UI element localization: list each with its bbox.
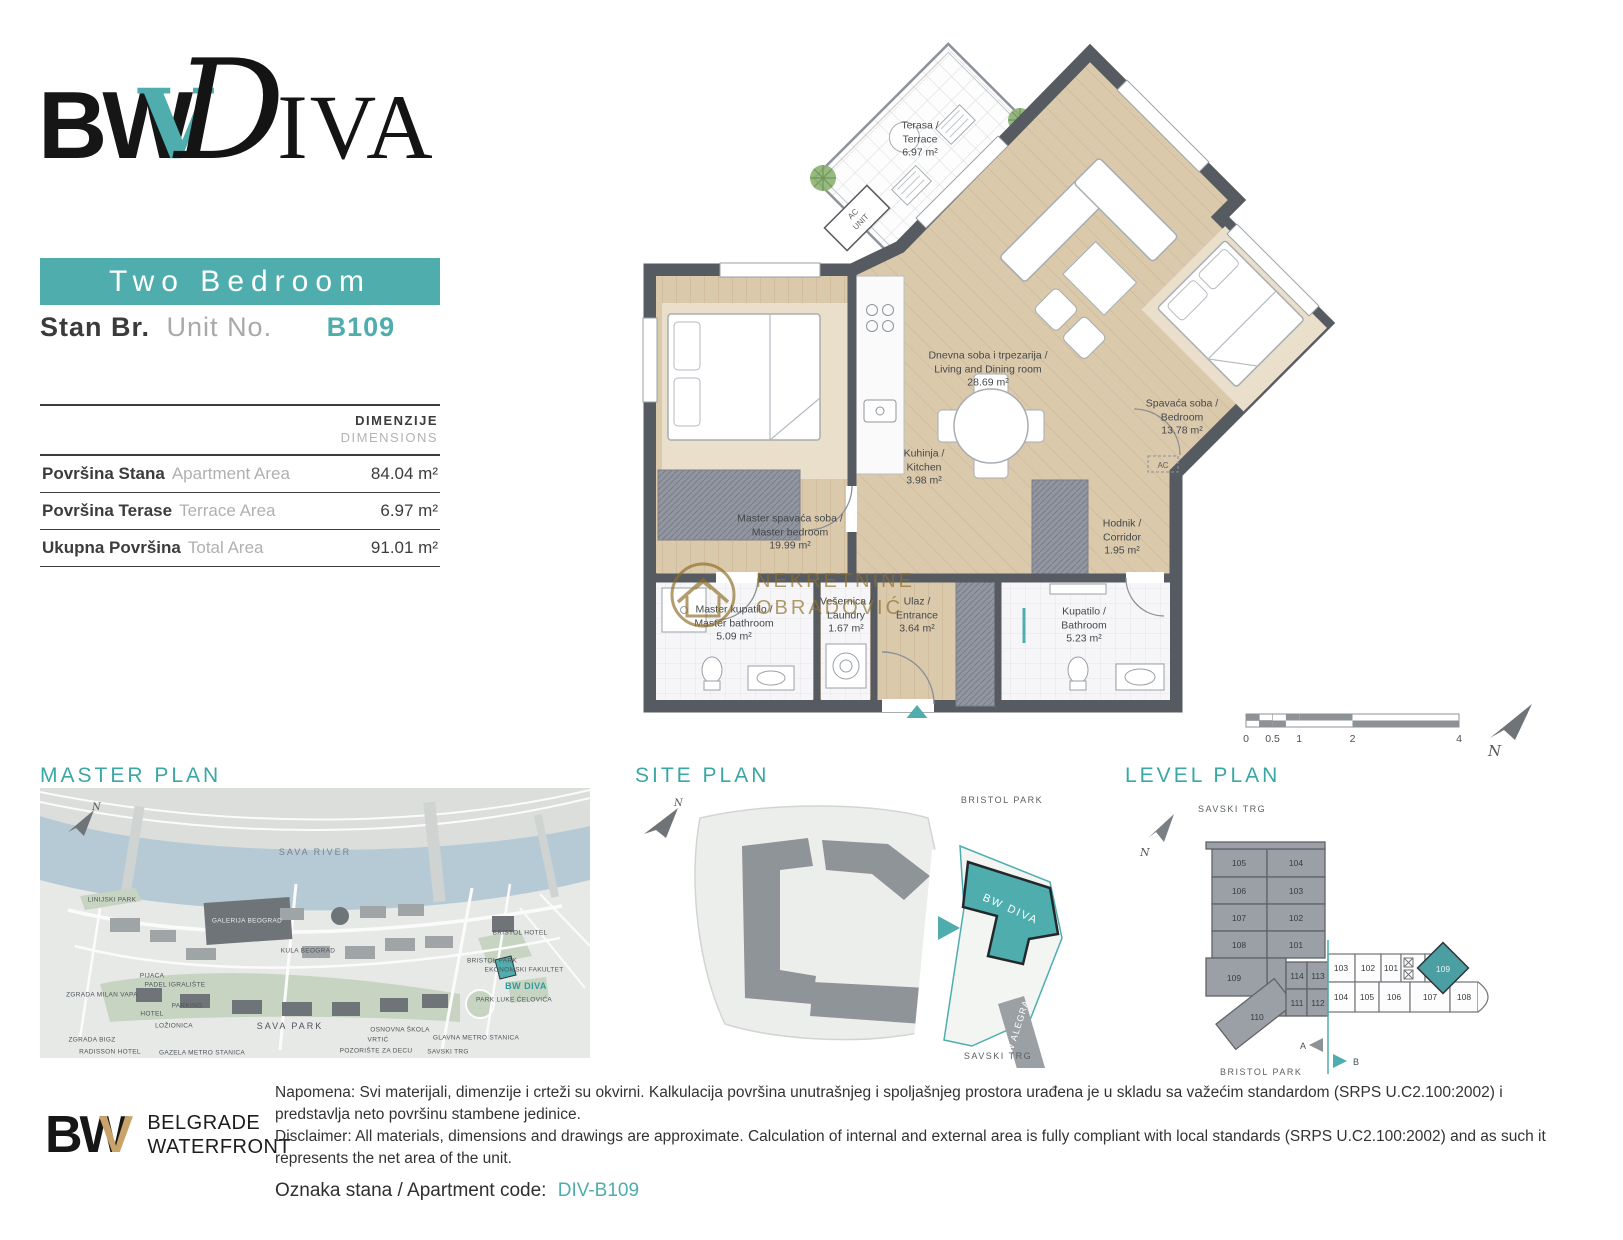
- scale-bar: 0 0.5 1 2 4: [1243, 714, 1462, 745]
- shaft-wall: [956, 578, 996, 706]
- svg-text:108: 108: [1232, 940, 1246, 950]
- svg-text:102: 102: [1289, 913, 1303, 923]
- svg-text:101: 101: [1289, 940, 1303, 950]
- row-label-sr: Površina Stana: [42, 464, 165, 484]
- room-label-corridor: Hodnik /Corridor1.95 m²: [1103, 518, 1142, 559]
- room-label-terrace: Terasa /Terrace6.97 m²: [901, 120, 938, 161]
- map-label-bw-diva: BW DIVA: [505, 981, 547, 991]
- apartment-code-line: Oznaka stana / Apartment code: DIV-B109: [275, 1180, 639, 1202]
- kitchen-sink-icon: [864, 400, 896, 422]
- watermark-line1: NEKRETNINE: [756, 568, 915, 595]
- map-label: GAZELA METRO STANICA: [159, 1050, 245, 1057]
- svg-text:111: 111: [1291, 998, 1304, 1008]
- site-plan-map: BW DIVA BW ALEGRA N BRISTOL PARK SAVSKI …: [630, 788, 1080, 1068]
- map-label: VRTIĆ: [368, 1037, 389, 1044]
- plant-icon: [810, 165, 836, 191]
- unit-type-banner: Two Bedroom: [40, 258, 440, 305]
- svg-text:N: N: [1139, 846, 1150, 859]
- unit-type-label: Two Bedroom: [109, 265, 371, 299]
- apartment-code-label: Oznaka stana / Apartment code:: [275, 1180, 546, 1201]
- footer-logo-text: BELGRADE WATERFRONT: [147, 1111, 291, 1159]
- map-label: GLAVNA METRO STANICA: [433, 1035, 519, 1042]
- svg-text:109: 109: [1227, 973, 1241, 983]
- svg-text:109: 109: [1436, 964, 1450, 974]
- table-row: Površina Stana Apartment Area 84.04 m²: [40, 454, 440, 492]
- map-label: PARK LUKE ĆELOVIĆA: [476, 997, 552, 1004]
- svg-text:104: 104: [1289, 858, 1303, 868]
- unit-label-en: Unit No.: [167, 312, 273, 342]
- site-label-bristol-park: BRISTOL PARK: [961, 795, 1043, 805]
- map-label: BRISTOL HOTEL: [493, 930, 548, 937]
- svg-text:N: N: [91, 802, 102, 813]
- dimensions-table: DIMENZIJE DIMENSIONS Površina Stana Apar…: [40, 404, 440, 567]
- note-serbian: Napomena: Svi materijali, dimenzije i cr…: [275, 1082, 1570, 1126]
- footer-logo-gold-v: V: [99, 1105, 134, 1165]
- scale-bar-area: 0 0.5 1 2 4 N: [1238, 694, 1568, 766]
- room-label-living: Dnevna soba i trpezarija /Living and Din…: [928, 350, 1047, 391]
- svg-text:101: 101: [1384, 963, 1398, 973]
- watermark-line2: OBRADOVIĆ: [756, 595, 915, 622]
- room-label-bedroom: Spavaća soba /Bedroom13.78 m²: [1146, 398, 1218, 439]
- dimensions-header: DIMENZIJE DIMENSIONS: [40, 404, 440, 454]
- svg-text:110: 110: [1250, 1012, 1264, 1022]
- agency-watermark: NEKRETNINE OBRADOVIĆ: [660, 560, 915, 630]
- disclaimer-note: Napomena: Svi materijali, dimenzije i cr…: [275, 1082, 1570, 1170]
- row-label-sr: Površina Terase: [42, 501, 172, 521]
- scale-bar-drawing: 0 0.5 1 2 4 N: [1238, 694, 1568, 766]
- map-label: KULA BEOGRAD: [281, 948, 336, 955]
- svg-text:103: 103: [1334, 963, 1348, 973]
- map-label: SAVA RIVER: [279, 847, 351, 857]
- svg-text:4: 4: [1456, 733, 1462, 745]
- north-arrow-icon: N: [1487, 704, 1532, 760]
- north-arrow-icon: N: [1139, 814, 1174, 859]
- room-label-master-bedroom: Master spavaća soba /Master bedroom19.99…: [737, 513, 843, 554]
- room-label-kitchen: Kuhinja /Kitchen3.98 m²: [904, 448, 945, 489]
- level-label-savski-trg: SAVSKI TRG: [1198, 804, 1266, 814]
- gray-wing: [1206, 842, 1328, 1049]
- row-label-en: Terrace Area: [179, 501, 275, 521]
- svg-text:114: 114: [1290, 971, 1304, 981]
- belgrade-waterfront-logo: BW V BELGRADE WATERFRONT: [45, 1105, 291, 1165]
- svg-text:AC: AC: [1157, 461, 1168, 470]
- row-value: 6.97 m²: [380, 501, 438, 521]
- map-label: BRISTOL PARK: [467, 958, 517, 965]
- site-label-savski-trg: SAVSKI TRG: [964, 1051, 1032, 1061]
- map-label: OSNOVNA ŠKOLA: [370, 1027, 430, 1034]
- level-plan-map: 105 104 106 103 107 102 108 101 109 110 …: [1120, 782, 1610, 1082]
- table-row: Površina Terase Terrace Area 6.97 m²: [40, 492, 440, 529]
- map-label: PADEL IGRALIŠTE: [145, 982, 206, 989]
- svg-text:N: N: [1487, 742, 1502, 760]
- map-label: LOŽIONICA: [155, 1023, 193, 1030]
- svg-text:102: 102: [1361, 963, 1375, 973]
- map-label: SAVA PARK: [257, 1021, 324, 1031]
- dimensions-title-sr: DIMENZIJE: [42, 413, 438, 428]
- row-label-en: Apartment Area: [172, 464, 290, 484]
- svg-text:N: N: [673, 798, 684, 809]
- laundry-washer: [826, 644, 866, 688]
- row-label-en: Total Area: [188, 538, 264, 558]
- map-label: PIJACA: [140, 973, 165, 980]
- note-english: Disclaimer: All materials, dimensions an…: [275, 1126, 1570, 1170]
- site-plan-title: SITE PLAN: [635, 764, 769, 788]
- svg-text:106: 106: [1232, 886, 1246, 896]
- master-plan-drawing: N: [40, 788, 590, 1058]
- unit-label-sr: Stan Br.: [40, 312, 150, 342]
- map-label: PARKING: [172, 1003, 203, 1010]
- row-label-sr: Ukupna Površina: [42, 538, 181, 558]
- level-plan-drawing: 105 104 106 103 107 102 108 101 109 110 …: [1120, 782, 1610, 1082]
- logo-script-d: D: [174, 56, 285, 166]
- dimensions-title-en: DIMENSIONS: [42, 430, 438, 445]
- unit-number: B109: [327, 312, 396, 342]
- map-label: POZORIŠTE ZA DECU: [340, 1048, 413, 1055]
- svg-text:1: 1: [1296, 733, 1302, 745]
- level-label-bristol-park: BRISTOL PARK: [1220, 1067, 1302, 1077]
- room-label-bathroom: Kupatilo /Bathroom5.23 m²: [1061, 606, 1107, 647]
- master-plan-title: MASTER PLAN: [40, 764, 221, 788]
- master-bed: [662, 303, 848, 479]
- map-label: HOTEL: [140, 1011, 163, 1018]
- svg-text:0.5: 0.5: [1265, 733, 1280, 745]
- bw-diva-logo: BW V D IVA: [38, 56, 435, 181]
- table-row: Ukupna Površina Total Area 91.01 m²: [40, 529, 440, 567]
- svg-text:108: 108: [1457, 992, 1471, 1002]
- svg-text:2: 2: [1350, 733, 1356, 745]
- svg-text:112: 112: [1311, 998, 1325, 1008]
- svg-text:0: 0: [1243, 733, 1249, 745]
- unit-number-line: Stan Br. Unit No. B109: [40, 312, 395, 343]
- svg-text:106: 106: [1387, 992, 1401, 1002]
- map-label: GALERIJA BEOGRAD: [212, 918, 282, 925]
- svg-text:113: 113: [1311, 971, 1325, 981]
- site-plan-drawing: BW DIVA BW ALEGRA N: [630, 788, 1080, 1068]
- svg-text:A: A: [1300, 1041, 1306, 1051]
- corridor-wardrobe: [1032, 480, 1088, 576]
- page: BW V D IVA Two Bedroom Stan Br. Unit No.…: [0, 0, 1623, 1240]
- svg-text:105: 105: [1360, 992, 1374, 1002]
- svg-text:105: 105: [1232, 858, 1246, 868]
- logo-iva-text: IVA: [277, 74, 435, 180]
- north-arrow-icon: N: [644, 798, 684, 838]
- section-markers: A B: [1300, 1038, 1359, 1068]
- apartment-code-value: DIV-B109: [558, 1180, 639, 1201]
- map-label: SAVSKI TRG: [427, 1049, 468, 1056]
- master-plan-map: N SAVA RIVER LINIJSKI PARK GALERIJA BEOG…: [40, 788, 590, 1058]
- svg-text:104: 104: [1334, 992, 1348, 1002]
- svg-text:B: B: [1353, 1057, 1359, 1067]
- map-label: RADISSON HOTEL: [79, 1049, 141, 1056]
- house-icon: [660, 560, 746, 630]
- svg-text:103: 103: [1289, 886, 1303, 896]
- kitchen-counter: [856, 276, 904, 474]
- map-label: EKONOMSKI FAKULTET: [485, 967, 564, 974]
- map-label: LINIJSKI PARK: [88, 897, 137, 904]
- map-label: ZGRADA BIGZ: [68, 1037, 115, 1044]
- svg-text:107: 107: [1423, 992, 1437, 1002]
- map-label: ZGRADA MILAN VAPA: [66, 992, 138, 999]
- row-value: 84.04 m²: [371, 464, 438, 484]
- row-value: 91.01 m²: [371, 538, 438, 558]
- svg-text:107: 107: [1232, 913, 1246, 923]
